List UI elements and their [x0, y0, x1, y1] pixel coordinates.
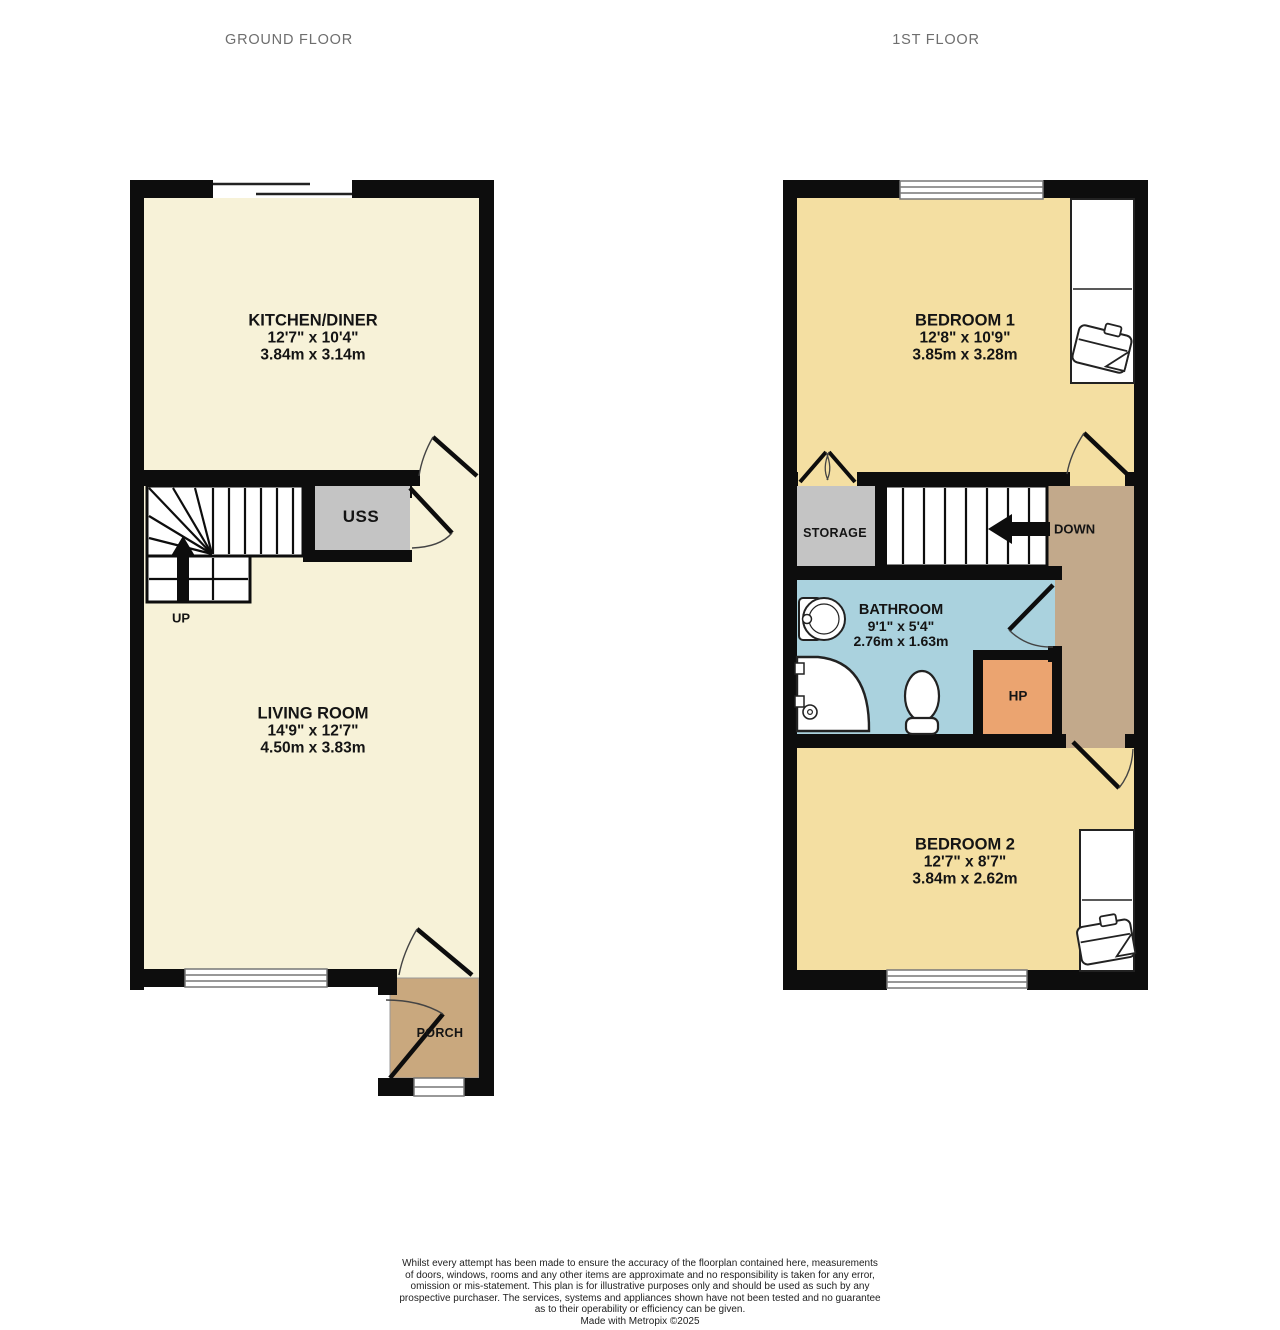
bedroom1-dims-metric: 3.85m x 3.28m — [912, 347, 1017, 364]
bathroom-label: BATHROOM 9'1" x 5'4" 2.76m x 1.63m — [854, 603, 949, 650]
down-label: DOWN — [1054, 522, 1095, 537]
disclaimer-line: prospective purchaser. The services, sys… — [330, 1293, 950, 1305]
disclaimer-line: omission or mis-statement. This plan is … — [330, 1281, 950, 1293]
kitchen-dims-metric: 3.84m x 3.14m — [248, 347, 377, 364]
bedroom1-window — [900, 181, 1043, 199]
living-room-dims-imperial: 14'9" x 12'7" — [258, 723, 369, 740]
disclaimer-line: Whilst every attempt has been made to en… — [330, 1258, 950, 1270]
bathroom-name: BATHROOM — [854, 603, 949, 619]
living-room-dims-metric: 4.50m x 3.83m — [258, 740, 369, 757]
uss-label: USS — [343, 507, 379, 527]
living-room-window — [185, 969, 327, 987]
storage-label: STORAGE — [803, 526, 867, 540]
bedroom1-dims-imperial: 12'8" x 10'9" — [912, 330, 1017, 347]
porch-label: PORCH — [417, 1026, 464, 1040]
kitchen-label: KITCHEN/DINER 12'7" x 10'4" 3.84m x 3.14… — [248, 313, 377, 364]
kitchen-window — [213, 180, 352, 198]
hp-label: HP — [1009, 689, 1028, 704]
ground-floor-title: GROUND FLOOR — [225, 32, 353, 48]
disclaimer: Whilst every attempt has been made to en… — [330, 1258, 950, 1328]
bedroom1-label: BEDROOM 1 12'8" x 10'9" 3.85m x 3.28m — [912, 313, 1017, 364]
disclaimer-line: of doors, windows, rooms and any other i… — [330, 1270, 950, 1282]
first-floor-title: 1ST FLOOR — [892, 32, 980, 48]
bedroom2-window — [887, 970, 1027, 988]
floorplan-canvas — [0, 0, 1280, 1330]
bathroom-dims-imperial: 9'1" x 5'4" — [854, 618, 949, 634]
bedroom2-dims-metric: 3.84m x 2.62m — [912, 871, 1017, 888]
floorplan-page: GROUND FLOOR 1ST FLOOR KITCHEN/DINER 12'… — [0, 0, 1280, 1330]
metropix-credit: Made with Metropix ©2025 — [330, 1316, 950, 1328]
living-room-name: LIVING ROOM — [258, 706, 369, 723]
bedroom2-label: BEDROOM 2 12'7" x 8'7" 3.84m x 2.62m — [912, 837, 1017, 888]
up-label: UP — [172, 611, 190, 626]
disclaimer-line: as to their operability or efficiency ca… — [330, 1304, 950, 1316]
sink-icon — [799, 598, 845, 640]
living-room-label: LIVING ROOM 14'9" x 12'7" 4.50m x 3.83m — [258, 706, 369, 757]
kitchen-living-wall — [130, 470, 420, 486]
bathroom-dims-metric: 2.76m x 1.63m — [854, 634, 949, 650]
toilet-icon — [905, 671, 939, 734]
kitchen-name: KITCHEN/DINER — [248, 313, 377, 330]
kitchen-dims-imperial: 12'7" x 10'4" — [248, 330, 377, 347]
bedroom2-name: BEDROOM 2 — [912, 837, 1017, 854]
bedroom2-dims-imperial: 12'7" x 8'7" — [912, 854, 1017, 871]
porch-front-door-gap — [414, 1078, 464, 1096]
bedroom1-name: BEDROOM 1 — [912, 313, 1017, 330]
